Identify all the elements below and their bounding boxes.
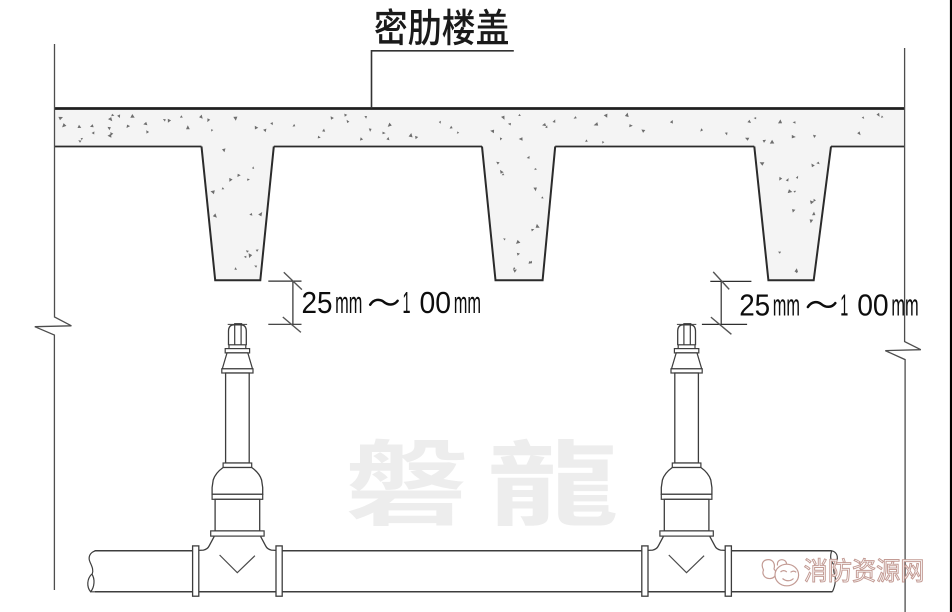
svg-text:00: 00 xyxy=(857,289,889,323)
svg-text:mm: mm xyxy=(773,289,800,323)
svg-text:mm: mm xyxy=(335,286,362,320)
svg-text:1: 1 xyxy=(403,286,411,320)
svg-text:25: 25 xyxy=(739,289,770,323)
svg-text:mm: mm xyxy=(891,289,918,323)
svg-text:1: 1 xyxy=(840,289,848,323)
svg-text:25: 25 xyxy=(302,286,333,320)
svg-text:mm: mm xyxy=(454,286,481,320)
svg-text:00: 00 xyxy=(420,286,452,320)
